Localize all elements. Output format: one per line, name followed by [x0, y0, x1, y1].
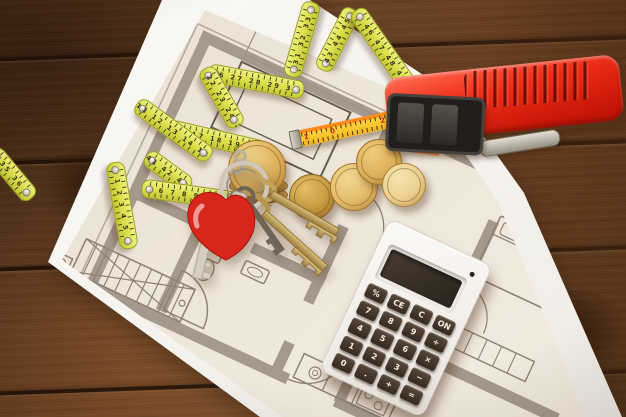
calc-key: × [415, 349, 440, 372]
calculator-dot [469, 271, 476, 278]
tape-measure-clip [478, 128, 562, 158]
calc-key: 6 [392, 338, 417, 361]
coin [382, 163, 426, 207]
calc-key: + [376, 373, 401, 396]
calculator: % CE C ON 7 8 9 ÷ 4 5 6 × 1 2 3 − 0 . + … [349, 234, 471, 406]
calc-key: . [353, 362, 378, 385]
calc-key: = [399, 384, 424, 407]
calc-key: 0 [331, 352, 356, 375]
photo-scene: 31 32 33 43 44 45 46 47 48 49 26 27 28 2… [0, 0, 626, 417]
calc-key: 4 [347, 317, 372, 340]
tape-measure [368, 56, 626, 160]
chain-link [235, 151, 245, 161]
tape-measure-window [385, 93, 486, 156]
tape-measure-body [383, 54, 625, 144]
calc-key: 5 [370, 328, 395, 351]
house-keys [140, 120, 360, 300]
heart-keychain [188, 190, 255, 260]
